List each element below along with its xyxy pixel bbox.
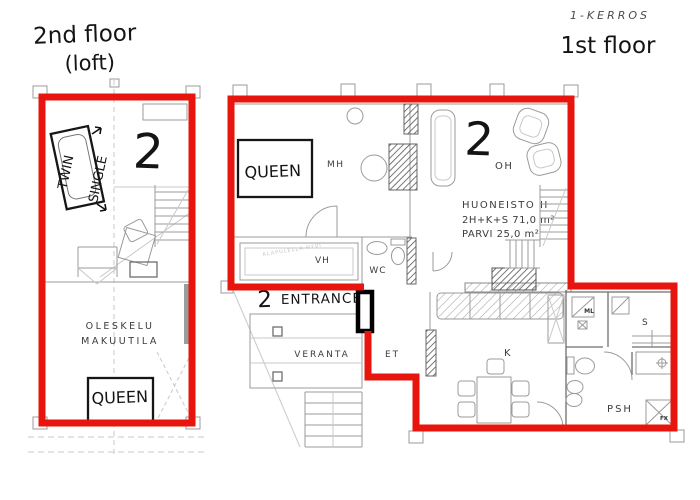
loft-queen-bed: QUEEN [88,378,153,424]
room-label-psh: PSH [607,404,633,415]
right-unit-number: 2 [464,112,495,167]
twin-single-bed: TWIN SINGLE [51,126,111,211]
veranda: VERANTA [250,314,362,447]
room-label-oh: OH [495,161,513,172]
loft-furniture [118,218,157,277]
floor-plan-image: TWIN SINGLE 2 OLESKELU MAKUUTILA QUEEN [0,0,700,500]
mh-queen-label: QUEEN [244,161,301,182]
room-label-et: ET [385,350,400,360]
right-plan-title: 1st floor [560,33,656,59]
room-label-oleskelu: OLESKELU [86,321,155,332]
wc-room: WC [367,239,405,276]
room-label-makuutila: MAKUUTILA [81,336,159,347]
mh-bedroom: QUEEN MH [238,108,387,237]
entrance-label: ENTRANCE [281,291,362,308]
room-label-k: K [504,348,512,359]
left-plan: TWIN SINGLE 2 OLESKELU MAKUUTILA QUEEN [28,79,206,455]
main-stairs [505,185,568,268]
faint-pencil-note: KLAPULELLA HYVI [262,243,322,258]
room-label-wc: WC [369,266,386,276]
entrance-annotation: 2 ENTRANCE [257,287,362,313]
entrance-door-marker [358,292,372,331]
dining-table [477,377,511,423]
loft-stairs [155,185,190,247]
room-label-ml: ML [584,308,594,315]
bed-arrow-top [92,127,101,134]
room-label-vh: VH [315,256,330,266]
stair-wall [492,268,536,290]
wall-block [404,104,418,134]
room-label-veranta: VERANTA [294,350,350,360]
left-unit-number: 2 [132,123,164,180]
entry-steps [305,392,362,447]
apartment-info-line3: PARVI 25,0 m² [462,229,539,240]
bed-arrow-bottom [97,204,106,211]
right-plan: QUEEN MH KLAPULELLA HYVI VH WC [221,84,684,447]
room-label-s: S [642,318,648,328]
room-label-mh: MH [327,160,345,170]
vh-closet: KLAPULELLA HYVI VH [240,243,358,280]
wc-wall [407,238,416,284]
loft-railing [78,247,117,284]
apartment-info-line2: 2H+K+S 71,0 m² [462,215,555,226]
loft-queen-label: QUEEN [91,387,148,408]
room-label-fx: FX [660,416,669,422]
right-plan-walls [221,84,684,447]
titles: 2nd floor (loft) 1-KERROS 1st floor [33,9,656,76]
bathroom-block: ML S FX PSH [566,290,674,428]
fireplace-chimney [389,144,417,190]
left-plan-title-line1: 2nd floor [33,20,138,50]
oh-living-room: 2 OH HUONEISTO II 2H+K+S 71,0 m² PARVI 2… [431,105,563,240]
apartment-info-line1: HUONEISTO II [462,200,549,211]
right-plan-code: 1-KERROS [570,9,650,22]
kitchen: K [437,293,564,428]
entrance-number: 2 [257,287,273,313]
left-plan-title-line2: (loft) [64,50,115,76]
et-wall [426,330,436,376]
